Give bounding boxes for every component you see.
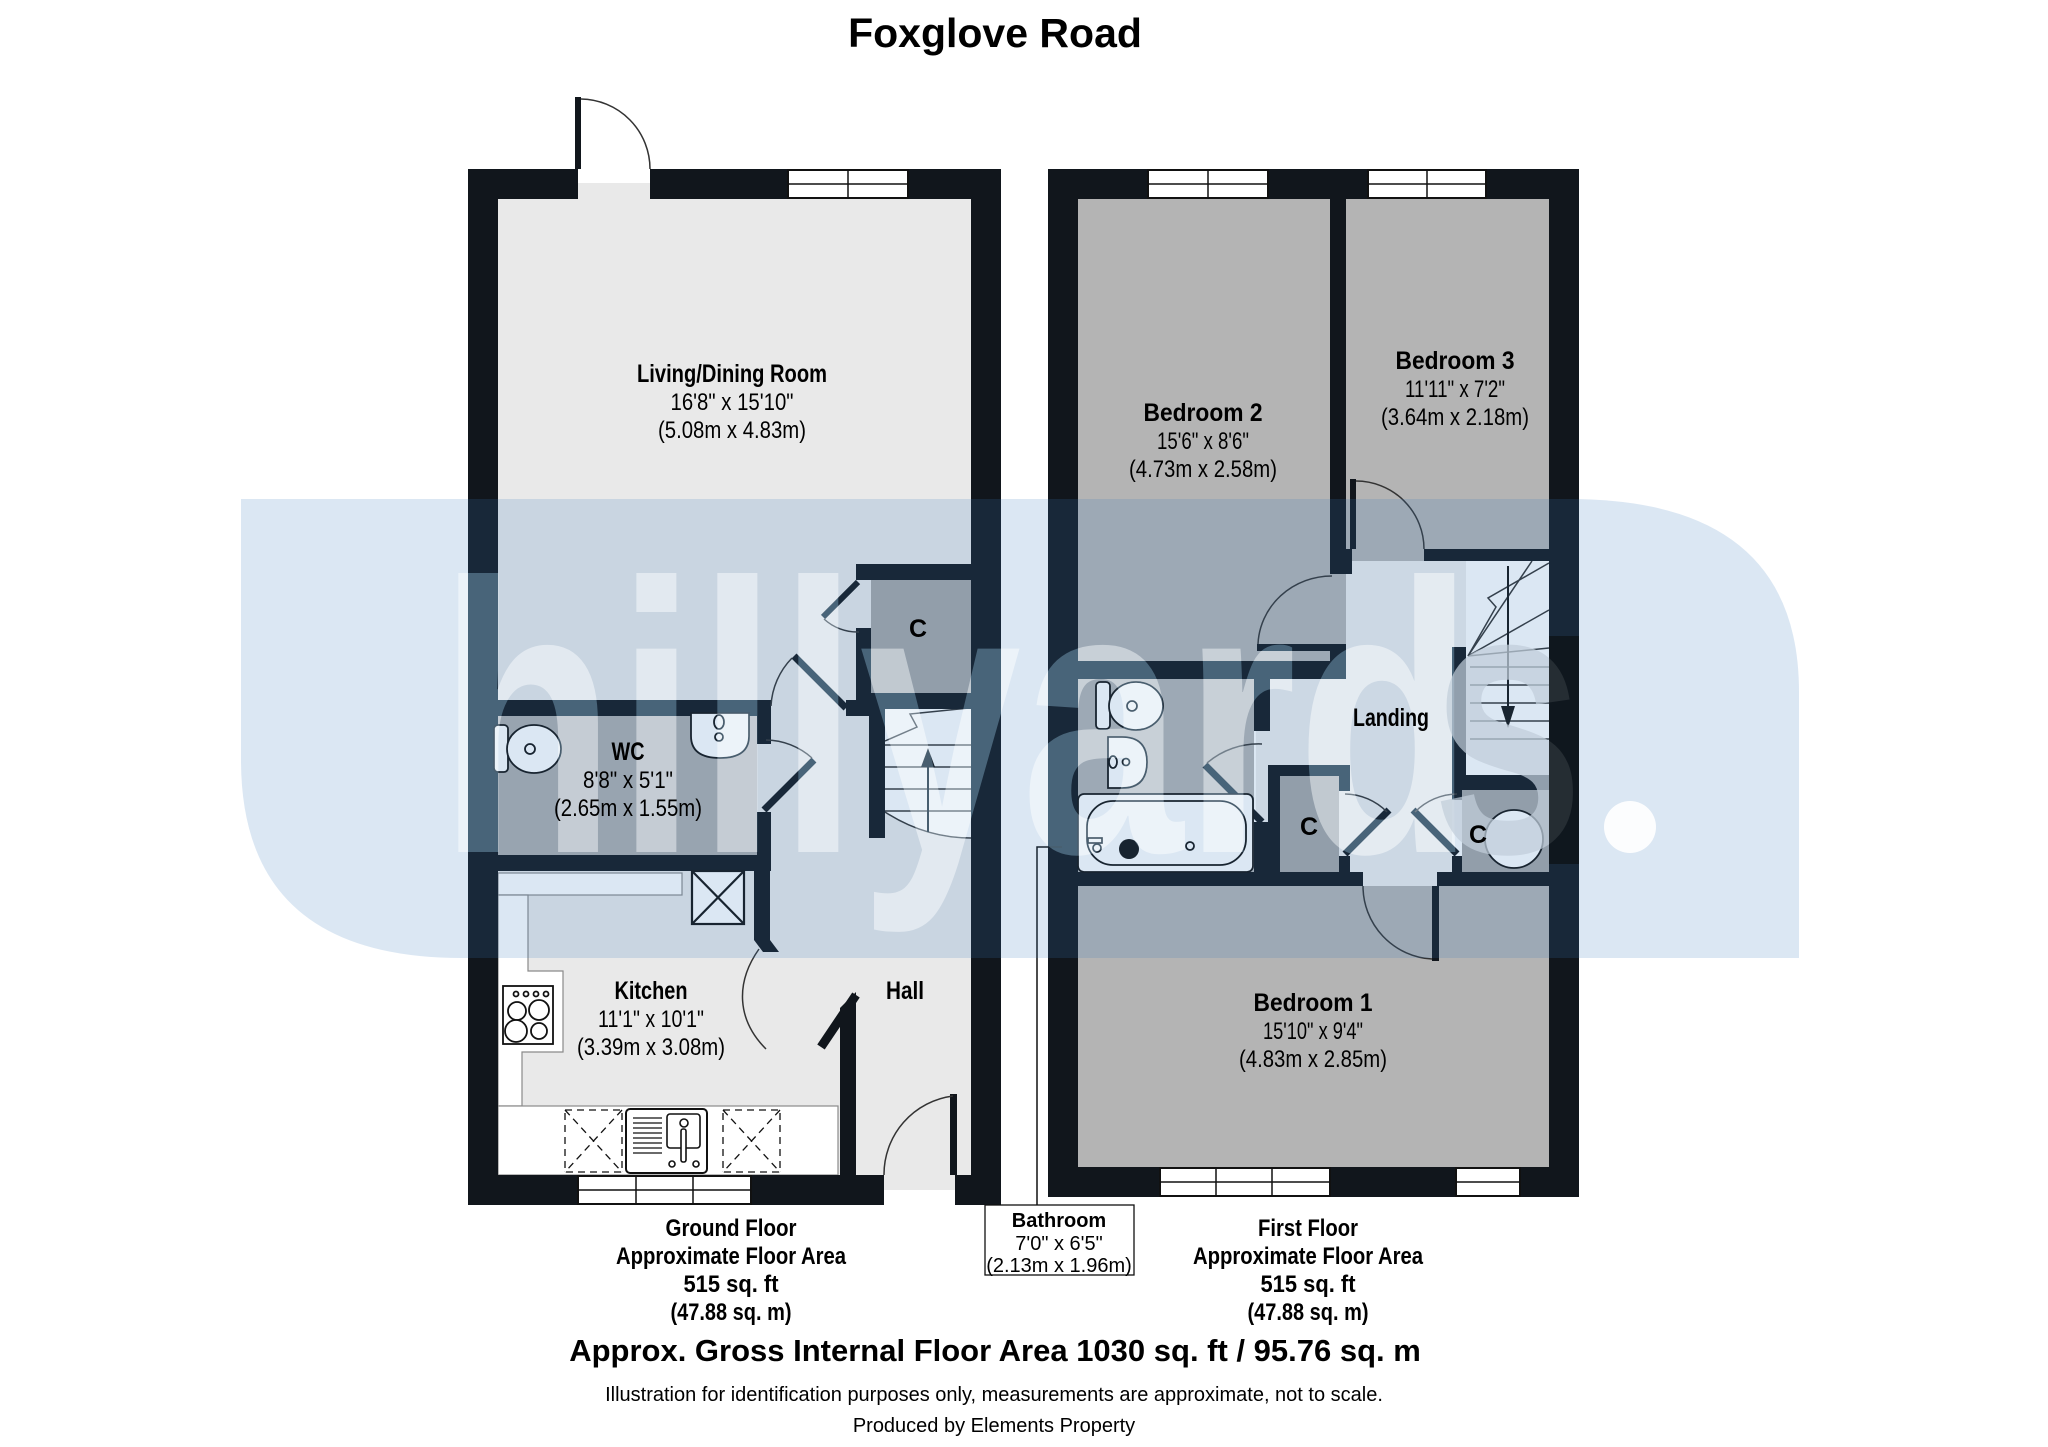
svg-text:Produced by Elements Property: Produced by Elements Property bbox=[853, 1415, 1135, 1437]
svg-text:Approximate Floor Area: Approximate Floor Area bbox=[1193, 1243, 1424, 1270]
svg-text:8'8" x 5'1": 8'8" x 5'1" bbox=[583, 767, 673, 794]
svg-text:(4.83m x 2.85m): (4.83m x 2.85m) bbox=[1239, 1046, 1387, 1073]
svg-text:hillyard: hillyard bbox=[438, 505, 1475, 937]
svg-text:Bedroom 1: Bedroom 1 bbox=[1254, 989, 1373, 1017]
svg-text:Kitchen: Kitchen bbox=[615, 977, 688, 1005]
svg-text:Foxglove Road: Foxglove Road bbox=[848, 10, 1142, 56]
svg-text:Illustration for identificatio: Illustration for identification purposes… bbox=[605, 1384, 1383, 1406]
svg-text:Bathroom: Bathroom bbox=[1012, 1210, 1106, 1232]
svg-text:15'10" x 9'4": 15'10" x 9'4" bbox=[1263, 1018, 1363, 1045]
svg-text:(2.65m x 1.55m): (2.65m x 1.55m) bbox=[554, 795, 702, 822]
svg-text:C: C bbox=[909, 615, 927, 643]
svg-text:C: C bbox=[1469, 821, 1487, 849]
svg-text:(2.13m x 1.96m): (2.13m x 1.96m) bbox=[986, 1255, 1132, 1277]
svg-text:First Floor: First Floor bbox=[1258, 1215, 1358, 1242]
svg-text:Approx. Gross Internal Floor A: Approx. Gross Internal Floor Area 1030 s… bbox=[569, 1333, 1421, 1368]
svg-text:Bedroom 2: Bedroom 2 bbox=[1144, 399, 1263, 427]
svg-text:11'1" x 10'1": 11'1" x 10'1" bbox=[598, 1006, 704, 1033]
svg-text:(47.88 sq. m): (47.88 sq. m) bbox=[671, 1299, 792, 1326]
svg-text:Hall: Hall bbox=[886, 977, 924, 1005]
svg-text:11'11" x 7'2": 11'11" x 7'2" bbox=[1405, 376, 1505, 403]
svg-text:(3.39m x 3.08m): (3.39m x 3.08m) bbox=[577, 1034, 725, 1061]
svg-text:(4.73m x 2.58m): (4.73m x 2.58m) bbox=[1129, 456, 1277, 483]
svg-text:Approximate Floor Area: Approximate Floor Area bbox=[616, 1243, 847, 1270]
svg-text:Landing: Landing bbox=[1353, 704, 1429, 732]
svg-text:(3.64m x 2.18m): (3.64m x 2.18m) bbox=[1381, 404, 1529, 431]
svg-text:Living/Dining Room: Living/Dining Room bbox=[637, 360, 827, 388]
svg-text:(5.08m x 4.83m): (5.08m x 4.83m) bbox=[658, 417, 806, 444]
svg-text:Ground Floor: Ground Floor bbox=[666, 1215, 797, 1242]
svg-text:15'6" x 8'6": 15'6" x 8'6" bbox=[1157, 428, 1249, 455]
svg-text:16'8" x 15'10": 16'8" x 15'10" bbox=[671, 389, 794, 416]
svg-text:WC: WC bbox=[612, 738, 645, 766]
svg-text:7'0" x 6'5": 7'0" x 6'5" bbox=[1015, 1233, 1102, 1255]
svg-text:515 sq. ft: 515 sq. ft bbox=[1261, 1271, 1356, 1298]
svg-text:(47.88 sq. m): (47.88 sq. m) bbox=[1248, 1299, 1369, 1326]
svg-text:C: C bbox=[1300, 813, 1318, 841]
svg-text:Bedroom 3: Bedroom 3 bbox=[1396, 347, 1515, 375]
svg-text:515 sq. ft: 515 sq. ft bbox=[684, 1271, 779, 1298]
